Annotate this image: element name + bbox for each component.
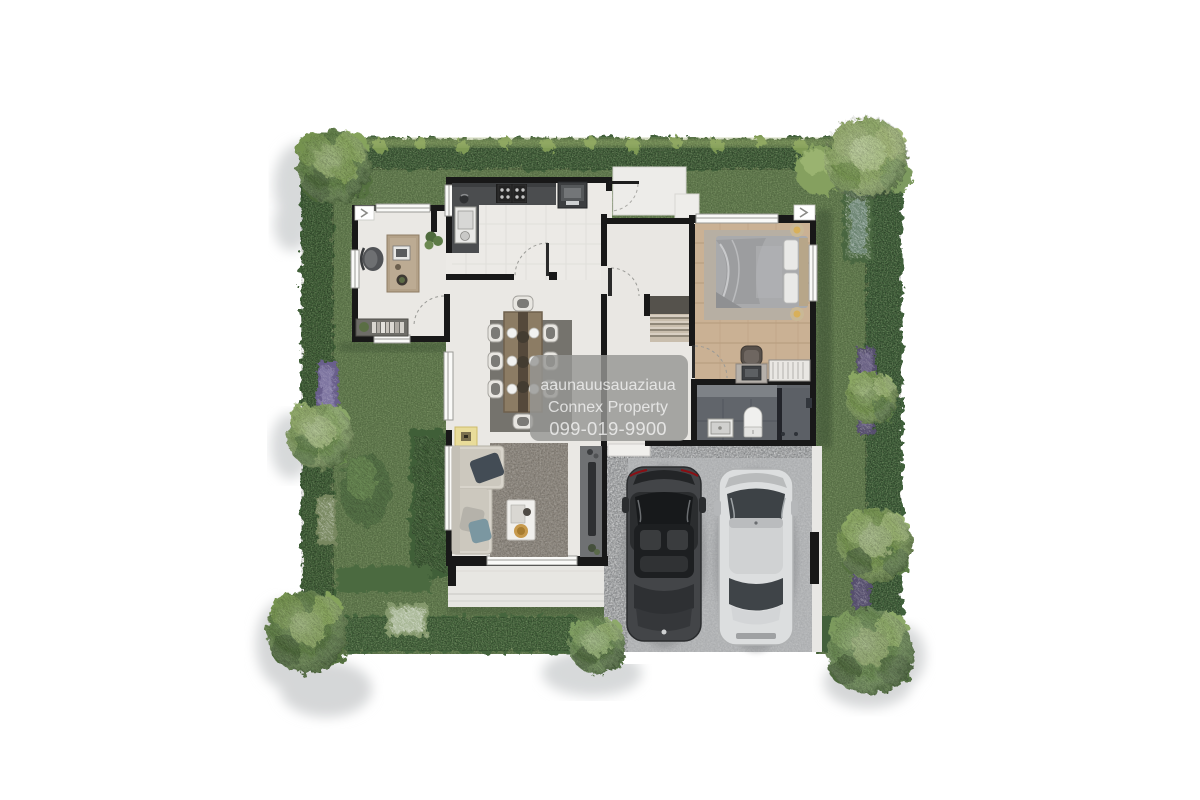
svg-text:Connex Property: Connex Property	[548, 399, 668, 416]
svg-text:aaunauusauaziaua: aaunauusauaziaua	[540, 377, 675, 394]
svg-text:099-019-9900: 099-019-9900	[549, 418, 667, 439]
